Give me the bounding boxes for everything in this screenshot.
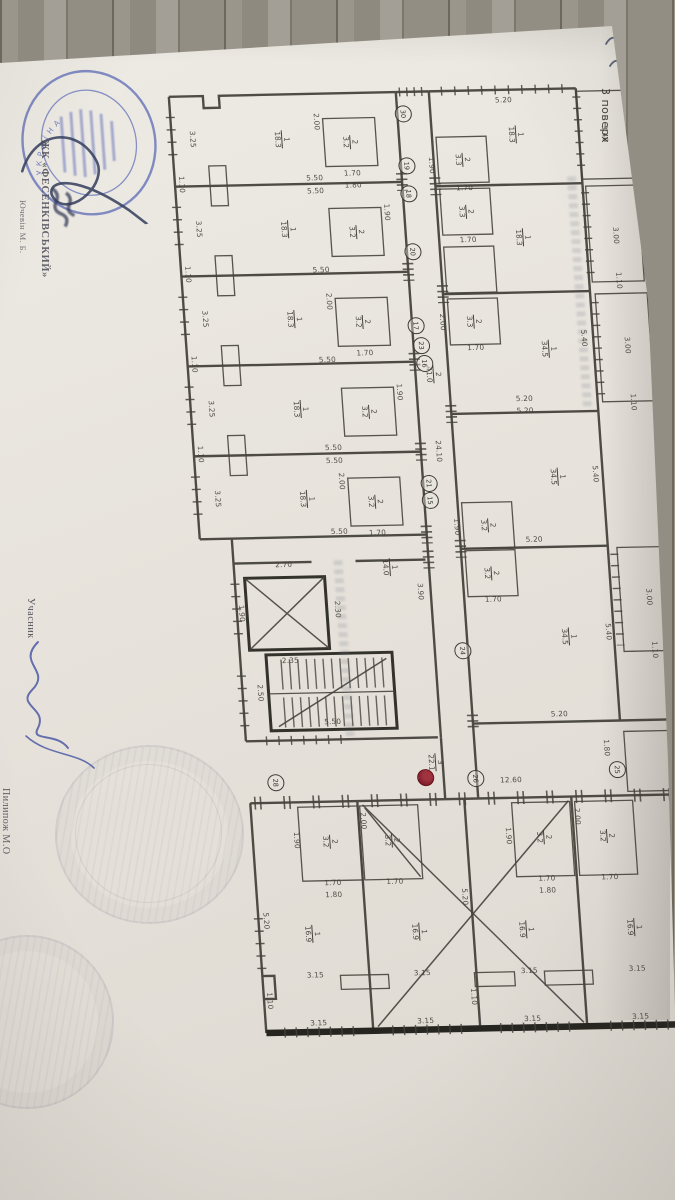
room-number-area-label: 134.5 — [540, 340, 558, 359]
dimension-label: 2.35 — [282, 656, 300, 665]
dimension-label: 5.20 — [460, 888, 470, 905]
room-area: 3.3 — [465, 315, 475, 329]
dimension-label: 2.00 — [359, 812, 369, 829]
room-area: 14.0 — [381, 558, 391, 576]
dimension-label: 12.60 — [500, 775, 523, 784]
room-area: 18.3 — [507, 125, 517, 143]
room-area: 3.2 — [360, 405, 370, 419]
axis-marker: 17 — [407, 317, 425, 334]
room-number: 2 — [351, 140, 359, 145]
dimension-label: 1.80 — [344, 180, 362, 189]
dimension-label: 1.70 — [386, 877, 404, 886]
room-number: 1 — [301, 407, 309, 412]
room-number-area-label: 116.9 — [517, 920, 535, 939]
participant-name: Пилипож М.О — [0, 788, 11, 855]
dimension-label: 1.10 — [183, 266, 193, 283]
room-number-area-label: 23.2 — [383, 833, 401, 847]
dimension-label: 3.25 — [213, 490, 223, 507]
room-number-area-label: 116.9 — [410, 922, 428, 941]
room-number-area-label: 118.3 — [298, 490, 316, 509]
dimension-label: 24.10 — [434, 440, 445, 462]
room-number-area-label: 23.3 — [465, 315, 483, 329]
room-number-area-label: 322.1 — [427, 753, 445, 772]
dimension-label: 5.50 — [307, 186, 325, 195]
dimension-label: 3.00 — [623, 337, 633, 354]
room-number-area-label: 118.3 — [273, 130, 291, 149]
dimension-label: 1.70 — [344, 168, 362, 177]
axis-marker: 21 — [420, 475, 438, 492]
dimension-label: 1.10 — [469, 988, 479, 1005]
dimension-label: 3.25 — [188, 131, 198, 148]
dimension-label: 5.20 — [515, 394, 533, 403]
room-area: 3.2 — [383, 833, 393, 847]
dimension-label: 2.70 — [275, 560, 293, 569]
dimension-label: 3.15 — [628, 964, 646, 973]
dimension-label: 1.90 — [395, 383, 405, 400]
dimension-label: 2.30 — [333, 601, 343, 618]
room-area: 18.3 — [279, 220, 289, 238]
room-number: 2 — [330, 839, 338, 844]
dimension-label: 1.90 — [292, 832, 302, 849]
room-number-area-label: 23.2 — [483, 566, 501, 580]
room-number-area-label: 118.3 — [286, 310, 304, 329]
dimension-label: 3.25 — [207, 400, 217, 417]
room-number: 1 — [420, 929, 428, 934]
room-number-area-label: 23.2 — [321, 835, 339, 849]
room-number-area-label: 23.3 — [457, 205, 475, 219]
room-area: 3.2 — [367, 495, 377, 509]
dimension-label: 1.70 — [459, 235, 477, 244]
dimension-label: 1.90 — [382, 204, 392, 221]
room-area: 3.2 — [598, 829, 608, 843]
participant-signature — [6, 634, 106, 784]
room-number: 2 — [434, 372, 442, 377]
room-area: 34.5 — [549, 468, 559, 486]
faint-round-stamp-2 — [0, 935, 114, 1109]
dimension-label: 2.00 — [337, 473, 347, 490]
axis-marker: 24 — [454, 642, 472, 659]
room-area: 34.5 — [540, 340, 550, 358]
dimension-label: 5.20 — [525, 535, 543, 544]
room-number-area-label: 23.2 — [341, 135, 359, 149]
dimension-label: 5.50 — [306, 173, 324, 182]
room-area: 16.9 — [410, 923, 420, 941]
dimension-label: 3.15 — [520, 966, 538, 975]
room-number-area-label: 23.2 — [348, 225, 366, 239]
room-number: 1 — [523, 235, 531, 240]
room-number: 2 — [488, 523, 496, 528]
dimension-label: 1.10 — [196, 446, 206, 463]
red-seal-marker — [417, 769, 435, 786]
room-number: 2 — [492, 571, 500, 576]
dimension-label: 2.00 — [324, 293, 334, 310]
room-number: 1 — [635, 925, 643, 930]
room-area: 18.3 — [298, 490, 308, 508]
dimension-label: 1.70 — [467, 343, 485, 352]
dimension-label: 5.50 — [312, 265, 330, 274]
room-number: 2 — [363, 319, 371, 324]
axis-marker: 26 — [467, 770, 485, 787]
room-number-area-label: 118.3 — [292, 400, 310, 419]
room-number: 1 — [282, 137, 290, 142]
faint-round-stamp-inner — [75, 764, 222, 903]
dimension-label: 1.70 — [324, 878, 342, 887]
dimension-label: 5.50 — [324, 717, 342, 726]
complex-title: ЖК «ФЕСЕНКІВСЬКИЙ» — [39, 140, 50, 278]
dimension-label: 2.00 — [573, 808, 583, 825]
dimension-label: 3.00 — [644, 588, 654, 605]
dimension-label: 1.90 — [237, 605, 247, 622]
room-area: 3.3 — [454, 153, 464, 167]
dimension-label: 1.10 — [629, 394, 639, 411]
room-number: 2 — [463, 157, 471, 162]
room-number-area-label: 134.5 — [549, 467, 567, 486]
axis-marker: 18 — [400, 185, 418, 202]
room-area: 3.2 — [483, 566, 493, 580]
room-number: 1 — [295, 317, 303, 322]
dimension-label: 1.70 — [484, 594, 502, 603]
room-number-area-label: 23.2 — [535, 830, 553, 844]
room-area: 34.5 — [560, 627, 570, 645]
room-number: 3 — [436, 760, 444, 765]
room-number-area-label: 23.2 — [367, 495, 385, 509]
room-number: 1 — [289, 227, 297, 232]
room-number-area-label: 118.3 — [279, 220, 297, 239]
room-number: 2 — [376, 499, 384, 504]
room-area: 3.2 — [535, 830, 545, 844]
floor-plan-drawing: 3.253.253.253.253.251.101.101.101.105.50… — [160, 75, 675, 1059]
dimension-label: 1.70 — [601, 872, 619, 881]
room-area: 16.9 — [303, 925, 313, 943]
room-number-area-label: 23.3 — [454, 153, 472, 167]
dimension-label: 1.70 — [356, 348, 374, 357]
dimension-label: 5.50 — [319, 355, 337, 364]
room-number: 1 — [313, 931, 321, 936]
dimension-label: 5.50 — [325, 443, 343, 452]
dimension-label: 1.10 — [189, 356, 199, 373]
room-number-area-label: 23.2 — [598, 829, 616, 843]
room-area: 18.3 — [286, 310, 296, 328]
dimension-label: 3.15 — [632, 1011, 650, 1020]
document-paper: УКРАЇНА ЖК «ФЕСЕНКІВСЬКИЙ» Ючевін М. Б. … — [0, 0, 675, 1200]
room-number: 1 — [549, 346, 557, 351]
dimension-label: 3.00 — [611, 227, 621, 244]
room-number: 2 — [467, 209, 475, 214]
dimension-label: 5.40 — [604, 623, 614, 640]
room-area: 3.2 — [479, 518, 489, 532]
dimension-label: 1.70 — [369, 528, 387, 537]
room-number: 2 — [474, 319, 482, 324]
dimension-label: 5.50 — [326, 456, 344, 465]
dimension-label: 5.50 — [331, 527, 349, 536]
person-name: Ючевін М. Б. — [18, 200, 28, 253]
plan-annotations: 3.253.253.253.253.251.101.101.101.105.50… — [160, 75, 675, 1059]
room-number-area-label: 134.5 — [560, 627, 578, 646]
dimension-label: 3.15 — [310, 1018, 328, 1027]
dimension-label: 3.15 — [417, 1016, 435, 1025]
dimension-label: 1.80 — [325, 890, 343, 899]
dimension-label: 3.15 — [413, 968, 431, 977]
room-area: 16.9 — [625, 918, 635, 936]
bleed-through-text-ghost — [567, 176, 592, 406]
room-number: 1 — [516, 132, 524, 137]
room-number: 1 — [569, 634, 577, 639]
room-number: 1 — [307, 497, 315, 502]
room-number: 1 — [390, 565, 398, 570]
dimension-label: 1.70 — [456, 183, 474, 192]
dimension-label: 5.40 — [591, 465, 601, 482]
dimension-label: 1.80 — [539, 885, 557, 894]
room-number-area-label: 23.2 — [354, 315, 372, 329]
room-area: 3.2 — [354, 315, 364, 329]
room-number-area-label: 23.2 — [360, 405, 378, 419]
dimension-label: 5.40 — [579, 330, 589, 347]
dimension-label: 3.15 — [307, 970, 325, 979]
dimension-label: 3.40 — [600, 125, 610, 142]
dimension-label: 1.90 — [452, 518, 462, 535]
dimension-label: 1.10 — [650, 641, 660, 658]
axis-marker: 20 — [404, 243, 422, 260]
room-number: 1 — [558, 474, 566, 479]
dimension-label: 2.00 — [312, 113, 322, 130]
room-area: 3.3 — [457, 205, 467, 219]
bleed-through-text-ghost — [333, 556, 355, 736]
dimension-label: 1.10 — [614, 272, 624, 289]
dimension-label: 5.20 — [261, 912, 271, 929]
room-area: 3.2 — [341, 135, 351, 149]
room-number: 2 — [369, 409, 377, 414]
room-number: 2 — [607, 833, 615, 838]
room-number: 2 — [357, 229, 365, 234]
dimension-label: 1.10 — [265, 992, 275, 1009]
axis-marker: 19 — [398, 157, 416, 174]
room-area: 18.3 — [273, 130, 283, 148]
room-area: 3.2 — [321, 835, 331, 849]
dimension-label: 1.90 — [427, 157, 437, 174]
dimension-label: 2.50 — [255, 684, 265, 701]
room-number: 2 — [392, 838, 400, 843]
room-area: 16.9 — [517, 920, 527, 938]
dimension-label: 5.20 — [551, 709, 569, 718]
axis-marker: 15 — [421, 492, 439, 509]
dimension-label: 2.00 — [438, 314, 448, 331]
dimension-label: 3.25 — [200, 310, 210, 327]
room-number: 2 — [544, 835, 552, 840]
room-area: 18.3 — [514, 228, 524, 246]
dimension-label: 1.90 — [504, 827, 514, 844]
dimension-label: 1.80 — [602, 739, 612, 756]
axis-marker: 25 — [608, 761, 626, 778]
dimension-label: 1.70 — [538, 873, 556, 882]
dimension-label: 5.20 — [495, 95, 513, 104]
dimension-label: 3.15 — [524, 1014, 542, 1023]
participant-label: Учасник — [25, 598, 36, 639]
room-number-area-label: 118.3 — [507, 125, 525, 144]
axis-marker: 28 — [267, 774, 285, 791]
room-area: 18.3 — [292, 400, 302, 418]
room-number-area-label: 116.9 — [303, 925, 321, 944]
room-number: 1 — [527, 927, 535, 932]
axis-marker: 23 — [412, 337, 430, 354]
dimension-label: 3.25 — [194, 221, 204, 238]
dimension-label: 5.20 — [516, 406, 534, 415]
room-number-area-label: 23.2 — [479, 518, 497, 532]
stamp-outer-ring — [6, 55, 173, 230]
room-number-area-label: 114.0 — [381, 558, 399, 577]
dimension-label: 1.10 — [177, 176, 187, 193]
dimension-label: 3.90 — [416, 583, 426, 600]
room-number-area-label: 118.3 — [514, 228, 532, 247]
stamp-inner-text-lines — [61, 107, 116, 178]
axis-marker: 30 — [394, 105, 412, 122]
room-number-area-label: 116.9 — [625, 918, 643, 937]
room-area: 3.2 — [348, 225, 358, 239]
